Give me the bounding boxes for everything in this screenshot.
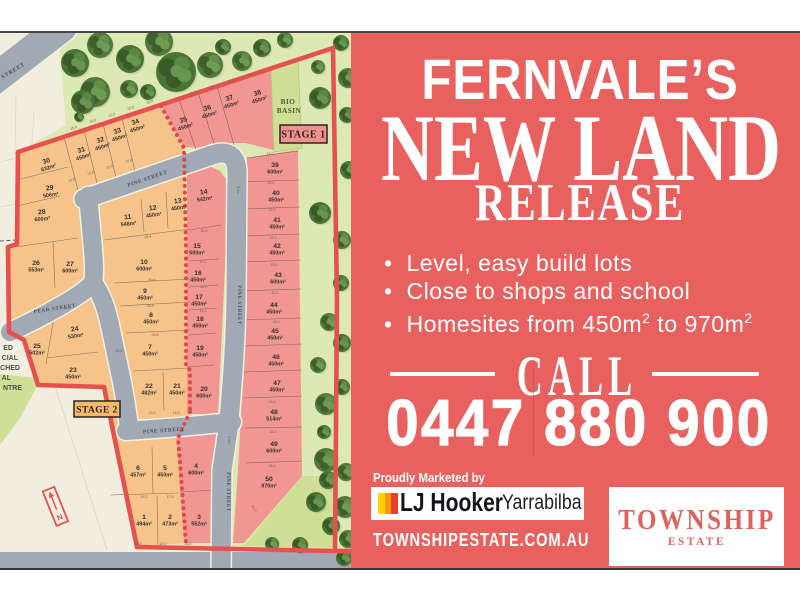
svg-text:18: 18	[196, 316, 204, 323]
svg-text:PINE STREET: PINE STREET	[225, 472, 230, 512]
svg-text:CIAL: CIAL	[2, 355, 19, 362]
svg-text:19: 19	[196, 345, 204, 352]
svg-text:BIO: BIO	[281, 98, 296, 106]
svg-text:29.8: 29.8	[152, 333, 159, 337]
svg-text:10: 10	[140, 259, 148, 266]
svg-text:26: 26	[32, 260, 40, 267]
svg-text:6: 6	[136, 465, 140, 472]
svg-text:40: 40	[272, 190, 280, 197]
svg-text:970m²: 970m²	[261, 484, 277, 490]
svg-text:502m²: 502m²	[29, 351, 45, 357]
svg-text:450m²: 450m²	[190, 278, 206, 284]
svg-text:450m²: 450m²	[169, 391, 185, 397]
svg-text:ED: ED	[3, 345, 13, 352]
svg-text:3: 3	[197, 514, 201, 521]
svg-text:473m²: 473m²	[162, 522, 178, 528]
svg-text:450m²: 450m²	[266, 310, 282, 316]
svg-text:15.0: 15.0	[270, 236, 277, 240]
svg-text:600m²: 600m²	[270, 280, 286, 286]
svg-text:PINE STREET: PINE STREET	[236, 285, 241, 325]
svg-text:STAGE 2: STAGE 2	[76, 406, 117, 416]
svg-text:13.0: 13.0	[135, 542, 142, 546]
svg-text:553m²: 553m²	[28, 268, 44, 274]
svg-text:9: 9	[143, 288, 147, 295]
svg-text:450m²: 450m²	[137, 296, 153, 302]
svg-text:BASIN: BASIN	[277, 107, 302, 115]
svg-text:16.8: 16.8	[185, 542, 192, 546]
svg-text:30.0: 30.0	[268, 181, 275, 185]
svg-text:45: 45	[271, 328, 279, 335]
svg-text:5: 5	[163, 465, 167, 472]
svg-text:42: 42	[273, 243, 281, 250]
svg-text:15.0: 15.0	[160, 542, 167, 546]
svg-text:450m²: 450m²	[268, 198, 284, 204]
svg-text:28: 28	[38, 209, 46, 217]
svg-text:4: 4	[194, 463, 198, 470]
svg-text:30.0: 30.0	[201, 229, 208, 233]
svg-text:450m²: 450m²	[269, 225, 285, 231]
svg-text:15.0: 15.0	[149, 411, 156, 415]
svg-text:17.8: 17.8	[167, 495, 174, 499]
svg-text:16.2: 16.2	[141, 495, 148, 499]
svg-text:15.2: 15.2	[200, 260, 207, 264]
svg-text:600m²: 600m²	[136, 267, 152, 273]
svg-text:457m²: 457m²	[130, 473, 146, 479]
svg-text:450m²: 450m²	[143, 320, 159, 326]
svg-text:49: 49	[270, 441, 278, 448]
svg-text:450m²: 450m²	[269, 388, 285, 394]
svg-text:11: 11	[124, 214, 132, 222]
svg-text:450m²: 450m²	[269, 251, 285, 257]
svg-text:8: 8	[149, 312, 153, 319]
svg-text:24.0: 24.0	[267, 152, 274, 156]
svg-text:39: 39	[271, 162, 279, 169]
svg-text:28.8: 28.8	[147, 304, 154, 308]
svg-text:21: 21	[173, 383, 181, 390]
svg-text:600m²: 600m²	[196, 394, 212, 400]
svg-text:20: 20	[200, 386, 208, 393]
svg-text:600m²: 600m²	[267, 170, 283, 176]
svg-text:450m²: 450m²	[157, 473, 173, 479]
svg-text:482m²: 482m²	[141, 391, 157, 397]
svg-text:16: 16	[194, 270, 202, 277]
svg-text:14.0: 14.0	[173, 411, 180, 415]
svg-text:15: 15	[193, 243, 201, 250]
svg-text:450m²: 450m²	[267, 336, 283, 342]
svg-text:600m²: 600m²	[188, 471, 204, 477]
svg-text:32.3: 32.3	[270, 430, 277, 434]
svg-text:3.5m: 3.5m	[236, 186, 240, 194]
svg-text:600m²: 600m²	[266, 449, 282, 455]
svg-text:30.4: 30.4	[149, 278, 156, 282]
svg-text:450m²: 450m²	[268, 362, 284, 368]
svg-text:CHED: CHED	[0, 365, 20, 372]
svg-text:514m²: 514m²	[266, 417, 282, 423]
svg-text:41: 41	[273, 217, 281, 224]
svg-text:600m²: 600m²	[62, 269, 78, 275]
svg-text:17: 17	[195, 294, 203, 301]
svg-text:46: 46	[272, 354, 280, 361]
svg-text:15.0: 15.0	[273, 320, 280, 324]
svg-text:500m²: 500m²	[189, 251, 205, 257]
svg-text:27: 27	[66, 261, 74, 268]
svg-text:3.5m: 3.5m	[227, 436, 231, 444]
svg-text:15.0: 15.0	[269, 208, 276, 212]
svg-text:AL: AL	[2, 375, 12, 382]
svg-text:23: 23	[69, 367, 77, 374]
svg-text:35.4: 35.4	[269, 464, 276, 468]
svg-text:44: 44	[270, 302, 278, 309]
svg-text:494m²: 494m²	[136, 522, 152, 528]
svg-text:20.0: 20.0	[201, 285, 208, 289]
svg-text:7: 7	[148, 344, 152, 351]
svg-text:450m²: 450m²	[191, 302, 207, 308]
svg-text:25: 25	[33, 343, 41, 350]
svg-text:26.5: 26.5	[116, 349, 123, 353]
svg-text:450m²: 450m²	[192, 353, 208, 359]
svg-text:1: 1	[142, 514, 146, 521]
svg-text:450m²: 450m²	[65, 375, 81, 381]
svg-text:47: 47	[273, 380, 281, 387]
svg-text:43: 43	[274, 272, 282, 279]
svg-text:30.0: 30.0	[272, 291, 279, 295]
svg-text:2: 2	[168, 514, 172, 521]
svg-text:50: 50	[265, 476, 273, 483]
svg-text:STAGE 1: STAGE 1	[281, 130, 325, 141]
svg-text:450m²: 450m²	[142, 352, 158, 358]
svg-text:48: 48	[270, 409, 278, 416]
svg-text:22: 22	[145, 383, 153, 390]
svg-text:25.8: 25.8	[269, 400, 276, 404]
svg-text:552m²: 552m²	[191, 522, 207, 528]
svg-text:NTRE: NTRE	[3, 385, 22, 392]
svg-text:20.0: 20.0	[271, 263, 278, 267]
svg-text:450m²: 450m²	[192, 324, 208, 330]
svg-text:14.4: 14.4	[200, 309, 207, 313]
